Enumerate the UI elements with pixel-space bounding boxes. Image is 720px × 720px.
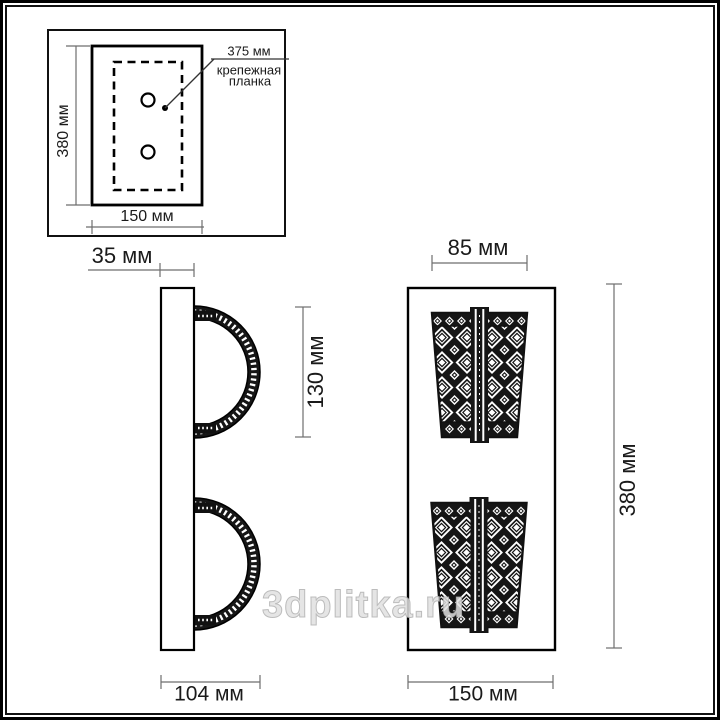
mounting-plate bbox=[92, 46, 202, 205]
side-shade-height-label: 130 мм bbox=[305, 335, 327, 408]
front-total-height-label: 380 мм bbox=[617, 443, 639, 516]
inset-drawing bbox=[48, 30, 289, 236]
mounting-bar-caption-line2: планка bbox=[229, 75, 271, 88]
side-plate-depth-label: 35 мм bbox=[92, 245, 153, 267]
front-shade-top bbox=[432, 307, 527, 443]
inset-width-label: 150 мм bbox=[120, 209, 173, 225]
side-shade-bottom bbox=[194, 498, 260, 630]
side-total-depth-label: 104 мм bbox=[174, 684, 244, 705]
dimension-diagram: 380 мм 150 мм 375 мм крепежная планка 35… bbox=[0, 0, 720, 720]
side-backplate bbox=[161, 288, 194, 650]
mounting-hole-top bbox=[142, 94, 155, 107]
side-shade-top bbox=[194, 306, 260, 438]
hole-spacing-label: 375 мм bbox=[227, 45, 270, 58]
mounting-hole-bottom bbox=[142, 146, 155, 159]
front-shade-width-label: 85 мм bbox=[448, 237, 509, 259]
watermark-text: 3dplitka.ru bbox=[262, 584, 465, 627]
inset-height-label: 380 мм bbox=[56, 104, 72, 157]
front-total-width-label: 150 мм bbox=[448, 684, 518, 705]
